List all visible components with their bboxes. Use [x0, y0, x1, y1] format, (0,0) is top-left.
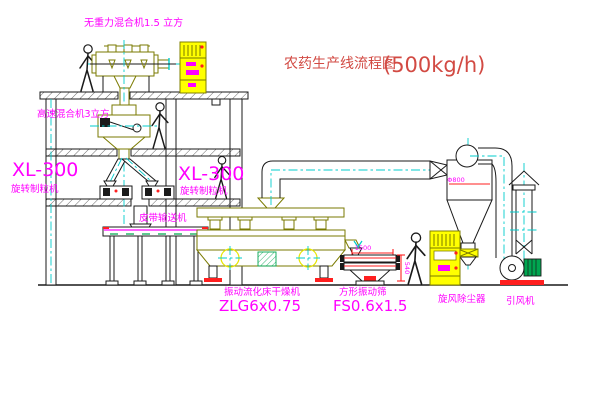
diagram-title-capacity: (500kg/h)	[383, 53, 485, 77]
label-granulator-right-name: 旋转制粒机	[180, 185, 228, 197]
label-dryer-model: ZLG6x0.75	[219, 297, 301, 315]
belt-conveyor	[103, 227, 208, 285]
label-high-speed-mixer: 高速混合机3立方	[37, 108, 110, 120]
label-cyclone: 旋风除尘器	[438, 293, 486, 305]
person-figure	[407, 233, 425, 284]
label-granulator-left-model: XL-300	[12, 159, 78, 181]
control-cabinet	[430, 231, 460, 285]
y-splitter-duct	[104, 158, 158, 186]
pesticide-line-flow-diagram: 农药生产线流程图 (500kg/h) 无重力混合机1.5 立方 高速混合机3立方…	[0, 0, 600, 403]
label-fan: 引风机	[506, 295, 535, 307]
dimension-sieve-width: 1500	[355, 244, 372, 252]
label-granulator-left-name: 旋转制粒机	[11, 183, 59, 195]
label-granulator-right-model: XL-300	[178, 163, 244, 185]
exhaust-duct	[262, 161, 450, 205]
exhaust-stack	[509, 163, 539, 260]
label-sieve-model: FS0.6x1.5	[333, 297, 407, 315]
cad-drawing-canvas: 农药生产线流程图 (500kg/h) 无重力混合机1.5 立方 高速混合机3立方…	[0, 0, 600, 403]
rotary-granulator-right	[142, 186, 174, 199]
label-gravity-mixer: 无重力混合机1.5 立方	[84, 16, 183, 29]
vibrating-fluid-bed-dryer	[197, 198, 360, 282]
control-cabinet	[180, 42, 206, 93]
dimension-cyclone: Φ800	[447, 176, 465, 184]
dimension-sieve-height: 540	[403, 262, 411, 274]
induced-draft-fan	[500, 256, 544, 285]
square-vibrating-sieve	[340, 241, 405, 285]
person-figure	[152, 103, 168, 148]
label-belt-conveyor: 皮带输送机	[139, 212, 187, 224]
rotary-granulator-left	[100, 186, 132, 199]
diagram-title: 农药生产线流程图	[284, 56, 396, 72]
